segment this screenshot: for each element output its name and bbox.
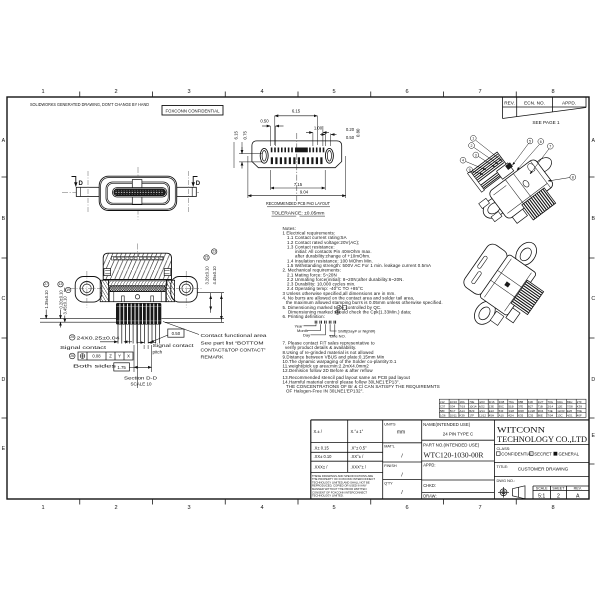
svg-text:24 PIN TYPE C: 24 PIN TYPE C bbox=[443, 431, 473, 436]
svg-text:11/28: 11/28 bbox=[528, 409, 535, 413]
svg-text:C: C bbox=[591, 296, 595, 302]
svg-text:C: C bbox=[2, 296, 6, 302]
svg-text:5: 5 bbox=[332, 89, 335, 95]
svg-text:40F: 40F bbox=[577, 413, 582, 417]
svg-text:3/28: 3/28 bbox=[508, 409, 514, 413]
svg-text:10/11: 10/11 bbox=[450, 413, 457, 417]
svg-text:DWG NO.:: DWG NO.: bbox=[497, 478, 516, 483]
svg-text:D: D bbox=[591, 377, 595, 383]
svg-text:18A: 18A bbox=[460, 400, 465, 404]
svg-text:REV.: REV. bbox=[504, 101, 515, 106]
svg-text:GENERAL: GENERAL bbox=[559, 451, 580, 456]
svg-text:D: D bbox=[2, 377, 6, 383]
svg-text:K30: K30 bbox=[528, 400, 534, 404]
svg-text:19: 19 bbox=[66, 288, 70, 292]
svg-text:9/16: 9/16 bbox=[489, 400, 495, 404]
svg-text:TITLE:: TITLE: bbox=[497, 464, 509, 469]
svg-text:FOXCONN CONFIDENTIAL: FOXCONN CONFIDENTIAL bbox=[166, 108, 221, 113]
svg-text:REMARK: REMARK bbox=[201, 355, 225, 360]
svg-text:G34: G34 bbox=[450, 404, 456, 408]
svg-text:.XX°± /: .XX°± / bbox=[351, 454, 365, 459]
svg-text:3.26±0.10: 3.26±0.10 bbox=[204, 266, 209, 285]
svg-text:71B: 71B bbox=[538, 404, 543, 408]
svg-text:8: 8 bbox=[572, 176, 574, 180]
svg-text:Signal contact: Signal contact bbox=[153, 343, 195, 348]
svg-text:8: 8 bbox=[551, 505, 554, 511]
svg-text:76E: 76E bbox=[577, 409, 582, 413]
svg-text:.XXX± /: .XXX± / bbox=[314, 465, 329, 470]
svg-text:3.45±0.10: 3.45±0.10 bbox=[63, 296, 68, 315]
svg-text:24X0.25±0.04: 24X0.25±0.04 bbox=[77, 336, 121, 341]
svg-text:WITCONN: WITCONN bbox=[497, 426, 545, 435]
svg-text:1/27: 1/27 bbox=[538, 400, 544, 404]
svg-text:25: 25 bbox=[70, 335, 74, 339]
svg-text:See part list “BOTTOM: See part list “BOTTOM bbox=[201, 341, 264, 346]
svg-text:2: 2 bbox=[114, 89, 117, 95]
svg-text:6. Printing definition:: 6. Printing definition: bbox=[283, 314, 326, 319]
svg-text:Day: Day bbox=[303, 332, 310, 337]
svg-text:3: 3 bbox=[187, 89, 190, 95]
svg-text:10/16: 10/16 bbox=[450, 400, 458, 404]
svg-text:D: D bbox=[196, 181, 201, 187]
svg-text:10/14: 10/14 bbox=[469, 404, 477, 408]
svg-text:Both sides: Both sides bbox=[73, 364, 117, 369]
svg-text:A10: A10 bbox=[499, 413, 505, 417]
svg-text:26: 26 bbox=[70, 354, 74, 358]
svg-text:Z: Z bbox=[109, 354, 112, 359]
svg-text:4/21: 4/21 bbox=[567, 413, 573, 417]
svg-text:A: A bbox=[2, 138, 6, 144]
svg-text:7/04: 7/04 bbox=[548, 413, 554, 417]
svg-text:B: B bbox=[591, 216, 595, 222]
svg-text:64G: 64G bbox=[557, 400, 563, 404]
svg-text:SHEET: SHEET bbox=[552, 487, 565, 491]
svg-text:0.80: 0.80 bbox=[356, 128, 361, 137]
svg-text:SCALE 10: SCALE 10 bbox=[131, 382, 153, 387]
svg-text:SOLIDWORKS GENERATED DRAWING,: SOLIDWORKS GENERATED DRAWING, DON'T CHAN… bbox=[30, 102, 149, 108]
svg-text:A14: A14 bbox=[460, 409, 466, 413]
svg-text:1/26: 1/26 bbox=[440, 413, 446, 417]
svg-text:.XXX°± /: .XXX°± / bbox=[351, 465, 367, 470]
svg-text:A: A bbox=[576, 493, 580, 499]
svg-text:21: 21 bbox=[205, 255, 209, 259]
svg-text:70E: 70E bbox=[469, 400, 474, 404]
svg-text:B29: B29 bbox=[469, 409, 475, 413]
svg-text:X.± /: X.± / bbox=[314, 429, 323, 434]
svg-text:1.35±0.10: 1.35±0.10 bbox=[44, 290, 49, 309]
svg-text:23: 23 bbox=[212, 249, 216, 253]
svg-text:7.15: 7.15 bbox=[294, 182, 303, 187]
svg-text:8: 8 bbox=[551, 89, 554, 95]
svg-text:1.75: 1.75 bbox=[117, 365, 126, 370]
svg-text:1.00: 1.00 bbox=[314, 125, 323, 130]
svg-text:45H: 45H bbox=[489, 413, 494, 417]
svg-text:6: 6 bbox=[405, 89, 408, 95]
svg-text:0.50: 0.50 bbox=[260, 119, 269, 124]
svg-text:T: T bbox=[338, 306, 340, 310]
svg-text:E22: E22 bbox=[489, 409, 495, 413]
svg-text:86E: 86E bbox=[538, 413, 543, 417]
svg-text:0.75: 0.75 bbox=[243, 131, 248, 140]
svg-text:TECHNOLOGY LIMITED.: TECHNOLOGY LIMITED. bbox=[312, 494, 344, 498]
svg-text:UNITS: UNITS bbox=[384, 422, 396, 426]
svg-text:17F: 17F bbox=[469, 413, 474, 417]
svg-text:9/04: 9/04 bbox=[538, 409, 544, 413]
svg-text:6: 6 bbox=[540, 140, 542, 144]
svg-text:6.15: 6.15 bbox=[292, 108, 301, 113]
svg-text:FINISH: FINISH bbox=[384, 464, 397, 468]
svg-text:Y: Y bbox=[118, 354, 121, 359]
svg-text:27: 27 bbox=[44, 282, 48, 286]
svg-text:1: 1 bbox=[472, 137, 474, 141]
svg-text:6: 6 bbox=[405, 505, 408, 511]
svg-text:WTC120-1030-00R: WTC120-1030-00R bbox=[424, 452, 484, 460]
svg-text:3: 3 bbox=[187, 505, 190, 511]
svg-text:5:1: 5:1 bbox=[538, 493, 545, 499]
svg-text:0.50: 0.50 bbox=[346, 135, 355, 140]
svg-text:PART NO.(INTENDED USE): PART NO.(INTENDED USE) bbox=[423, 443, 480, 448]
svg-text:0.50: 0.50 bbox=[172, 331, 181, 336]
svg-text:5: 5 bbox=[332, 505, 335, 511]
svg-text:X: X bbox=[127, 354, 130, 359]
svg-text:.XX± 0.10: .XX± 0.10 bbox=[314, 454, 333, 459]
svg-text:E: E bbox=[2, 446, 6, 452]
svg-text:3: 3 bbox=[475, 153, 477, 157]
svg-text:mm: mm bbox=[397, 430, 405, 436]
svg-text:E26: E26 bbox=[567, 409, 573, 413]
svg-text:1: 1 bbox=[41, 505, 44, 511]
svg-text:9: 9 bbox=[469, 168, 471, 172]
svg-text:4/23: 4/23 bbox=[479, 400, 485, 404]
svg-text:27F: 27F bbox=[577, 400, 582, 404]
svg-text:51B: 51B bbox=[508, 404, 513, 408]
svg-text:0.20: 0.20 bbox=[346, 127, 355, 132]
svg-text:2: 2 bbox=[557, 493, 560, 499]
svg-text:APPD:: APPD: bbox=[423, 463, 435, 468]
svg-text:SCALE: SCALE bbox=[536, 487, 548, 491]
svg-text:B27: B27 bbox=[528, 404, 534, 408]
svg-text:NAME(INTENDED USE): NAME(INTENDED USE) bbox=[423, 422, 471, 427]
svg-text:pitch: pitch bbox=[153, 350, 163, 355]
svg-text:DRAW:: DRAW: bbox=[423, 494, 436, 499]
svg-text:95C: 95C bbox=[499, 404, 504, 408]
svg-text:Contact functional area: Contact functional area bbox=[201, 333, 268, 338]
svg-text:E: E bbox=[591, 433, 595, 439]
svg-text:K39: K39 bbox=[460, 413, 466, 417]
svg-text:9.04: 9.04 bbox=[300, 190, 309, 195]
svg-text:2/14: 2/14 bbox=[548, 404, 554, 408]
svg-text:13: 13 bbox=[59, 282, 63, 286]
svg-text:B: B bbox=[2, 216, 6, 222]
svg-text:SEE PAGE 1: SEE PAGE 1 bbox=[532, 120, 560, 125]
svg-text:76G: 76G bbox=[508, 400, 514, 404]
svg-text:CUSTOMER DRAWING: CUSTOMER DRAWING bbox=[518, 467, 569, 472]
svg-text:5: 5 bbox=[529, 139, 531, 143]
svg-text:83H: 83H bbox=[567, 400, 572, 404]
svg-text:2: 2 bbox=[471, 144, 473, 148]
svg-text:7/19: 7/19 bbox=[460, 404, 466, 408]
svg-text:70G: 70G bbox=[548, 400, 554, 404]
svg-text:OF Halogen-Free IN 30LNE1'EP13: OF Halogen-Free IN 30LNE1'EP132". bbox=[286, 389, 364, 394]
svg-text:6.15: 6.15 bbox=[233, 131, 238, 140]
svg-text:RECOMMENDED PCB PAD LAYOUT: RECOMMENDED PCB PAD LAYOUT bbox=[266, 201, 330, 207]
svg-text:4.45±0.10: 4.45±0.10 bbox=[212, 266, 217, 285]
svg-text:.X°± 0.5°: .X°± 0.5° bbox=[351, 445, 368, 450]
svg-text:.X± 0.15: .X± 0.15 bbox=[314, 445, 330, 450]
svg-text:MAT'L: MAT'L bbox=[384, 445, 395, 449]
svg-text:11/12: 11/12 bbox=[479, 413, 486, 417]
svg-text:APPD.: APPD. bbox=[562, 101, 576, 106]
svg-text:7: 7 bbox=[478, 505, 481, 511]
svg-text:12E: 12E bbox=[557, 404, 562, 408]
svg-text:4: 4 bbox=[462, 159, 464, 163]
svg-text:13E: 13E bbox=[489, 404, 494, 408]
svg-text:12/23: 12/23 bbox=[557, 409, 565, 413]
svg-text:5/17: 5/17 bbox=[450, 409, 456, 413]
svg-text:8/28: 8/28 bbox=[518, 409, 524, 413]
svg-text:TECHNOLOGY CO.,LTD: TECHNOLOGY CO.,LTD bbox=[497, 435, 587, 444]
svg-text:12.Demision follow 2D Before &: 12.Demision follow 2D Before & after ref… bbox=[283, 368, 374, 373]
svg-text:95B: 95B bbox=[518, 400, 523, 404]
svg-text:K35: K35 bbox=[518, 413, 524, 417]
svg-text:7: 7 bbox=[478, 89, 481, 95]
svg-text:4: 4 bbox=[260, 505, 263, 511]
svg-text:74E: 74E bbox=[548, 409, 553, 413]
svg-text:J12: J12 bbox=[440, 400, 445, 404]
svg-text:C37: C37 bbox=[440, 404, 446, 408]
svg-text:2: 2 bbox=[114, 505, 117, 511]
svg-text:Signal contact: Signal contact bbox=[60, 345, 107, 350]
svg-text:X.°± 1°: X.°± 1° bbox=[351, 429, 364, 434]
svg-text:REV.: REV. bbox=[574, 487, 582, 491]
svg-text:7: 7 bbox=[549, 145, 551, 149]
svg-text:13C: 13C bbox=[557, 413, 562, 417]
svg-text:53F: 53F bbox=[499, 409, 504, 413]
svg-text:C35: C35 bbox=[528, 413, 534, 417]
svg-text:37E: 37E bbox=[518, 404, 523, 408]
svg-text:4: 4 bbox=[260, 89, 263, 95]
svg-text:6/22: 6/22 bbox=[479, 404, 485, 408]
svg-text:CONTACT&TOP CONTACT”: CONTACT&TOP CONTACT” bbox=[201, 348, 267, 353]
svg-text:0.08: 0.08 bbox=[92, 354, 101, 359]
svg-text:SECRET: SECRET bbox=[534, 451, 552, 456]
svg-text:4/14: 4/14 bbox=[479, 409, 485, 413]
svg-text:7/28: 7/28 bbox=[567, 404, 573, 408]
svg-text:K39: K39 bbox=[577, 404, 583, 408]
svg-text:CHKD:: CHKD: bbox=[423, 483, 436, 488]
svg-text:CLASS:: CLASS: bbox=[497, 446, 511, 451]
svg-text:3/08: 3/08 bbox=[499, 400, 505, 404]
svg-text:TOLERANCE: ±0.05mm: TOLERANCE: ±0.05mm bbox=[272, 210, 325, 216]
svg-text:58F: 58F bbox=[440, 409, 445, 413]
svg-text:CONFIDENTIAL: CONFIDENTIAL bbox=[501, 451, 533, 456]
svg-text:D: D bbox=[79, 181, 84, 187]
svg-text:Q'TY: Q'TY bbox=[384, 482, 393, 486]
svg-text:42H: 42H bbox=[508, 413, 513, 417]
svg-text:A: A bbox=[591, 138, 595, 144]
svg-text:1: 1 bbox=[41, 89, 44, 95]
svg-text:ECN. NO.: ECN. NO. bbox=[524, 101, 545, 106]
